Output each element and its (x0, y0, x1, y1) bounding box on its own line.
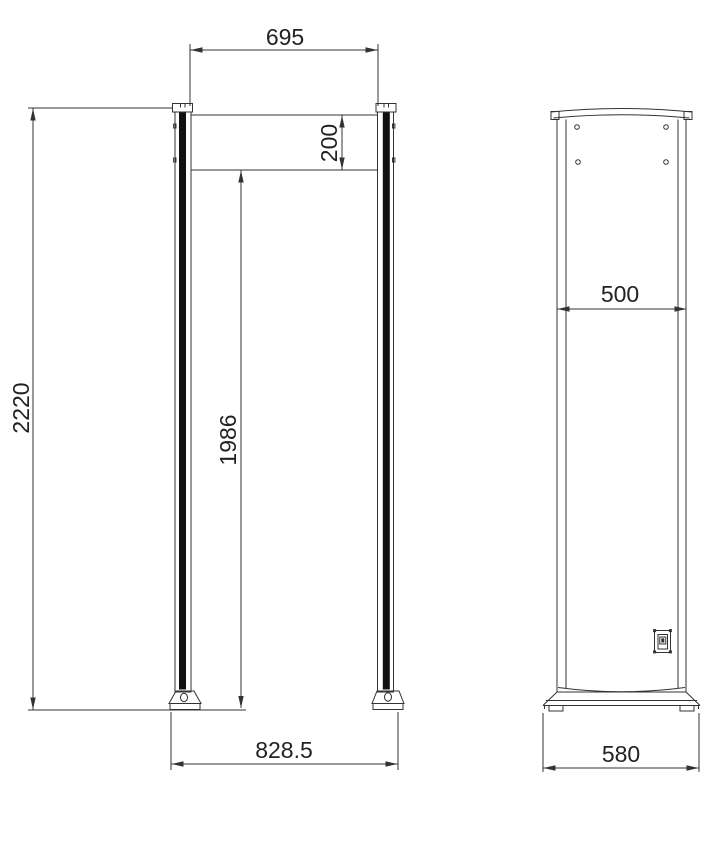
screw-hole (576, 160, 581, 165)
dim-label-inner-height: 1986 (215, 414, 241, 465)
side-column-body (557, 119, 686, 692)
dim-inner-height: 1986 (215, 171, 241, 709)
dim-header-height: 200 (316, 116, 342, 170)
right-foot (372, 691, 404, 710)
dim-top-width: 695 (190, 24, 378, 106)
left-column (173, 104, 193, 693)
left-foot-hole (181, 693, 188, 701)
bottom-arc (558, 688, 685, 692)
header-crossbar (191, 115, 378, 170)
right-column (376, 104, 396, 693)
dim-panel-width: 500 (558, 281, 687, 309)
dim-label-base-width: 828.5 (255, 737, 313, 763)
right-column-cap (376, 104, 396, 113)
left-detector-panel (179, 113, 186, 690)
power-switch (654, 630, 672, 653)
base-foot (680, 706, 694, 712)
drawing-canvas: 2220 695 200 1986 828.5 (0, 0, 726, 843)
dim-label-panel-width: 500 (601, 281, 639, 307)
base-foot (549, 706, 563, 712)
front-view: 2220 695 200 1986 828.5 (8, 24, 404, 770)
dim-label-top-width: 695 (266, 24, 304, 50)
side-cap (551, 109, 692, 120)
screw-hole (664, 160, 669, 165)
metal-detector-outline-drawing: 2220 695 200 1986 828.5 (0, 0, 726, 843)
right-detector-panel (383, 113, 390, 690)
dim-base-depth: 580 (543, 713, 699, 772)
dim-label-total-height: 2220 (8, 382, 34, 433)
dim-label-base-depth: 580 (602, 741, 640, 767)
screw-hole (664, 125, 669, 130)
side-base (543, 692, 700, 711)
right-foot-hole (385, 693, 392, 701)
dim-label-header-height: 200 (316, 124, 342, 162)
side-view: 500 580 (543, 109, 700, 773)
left-foot (169, 691, 201, 710)
dim-total-height: 2220 (8, 108, 246, 710)
dim-base-width: 828.5 (171, 712, 398, 770)
screw-hole (575, 125, 580, 130)
